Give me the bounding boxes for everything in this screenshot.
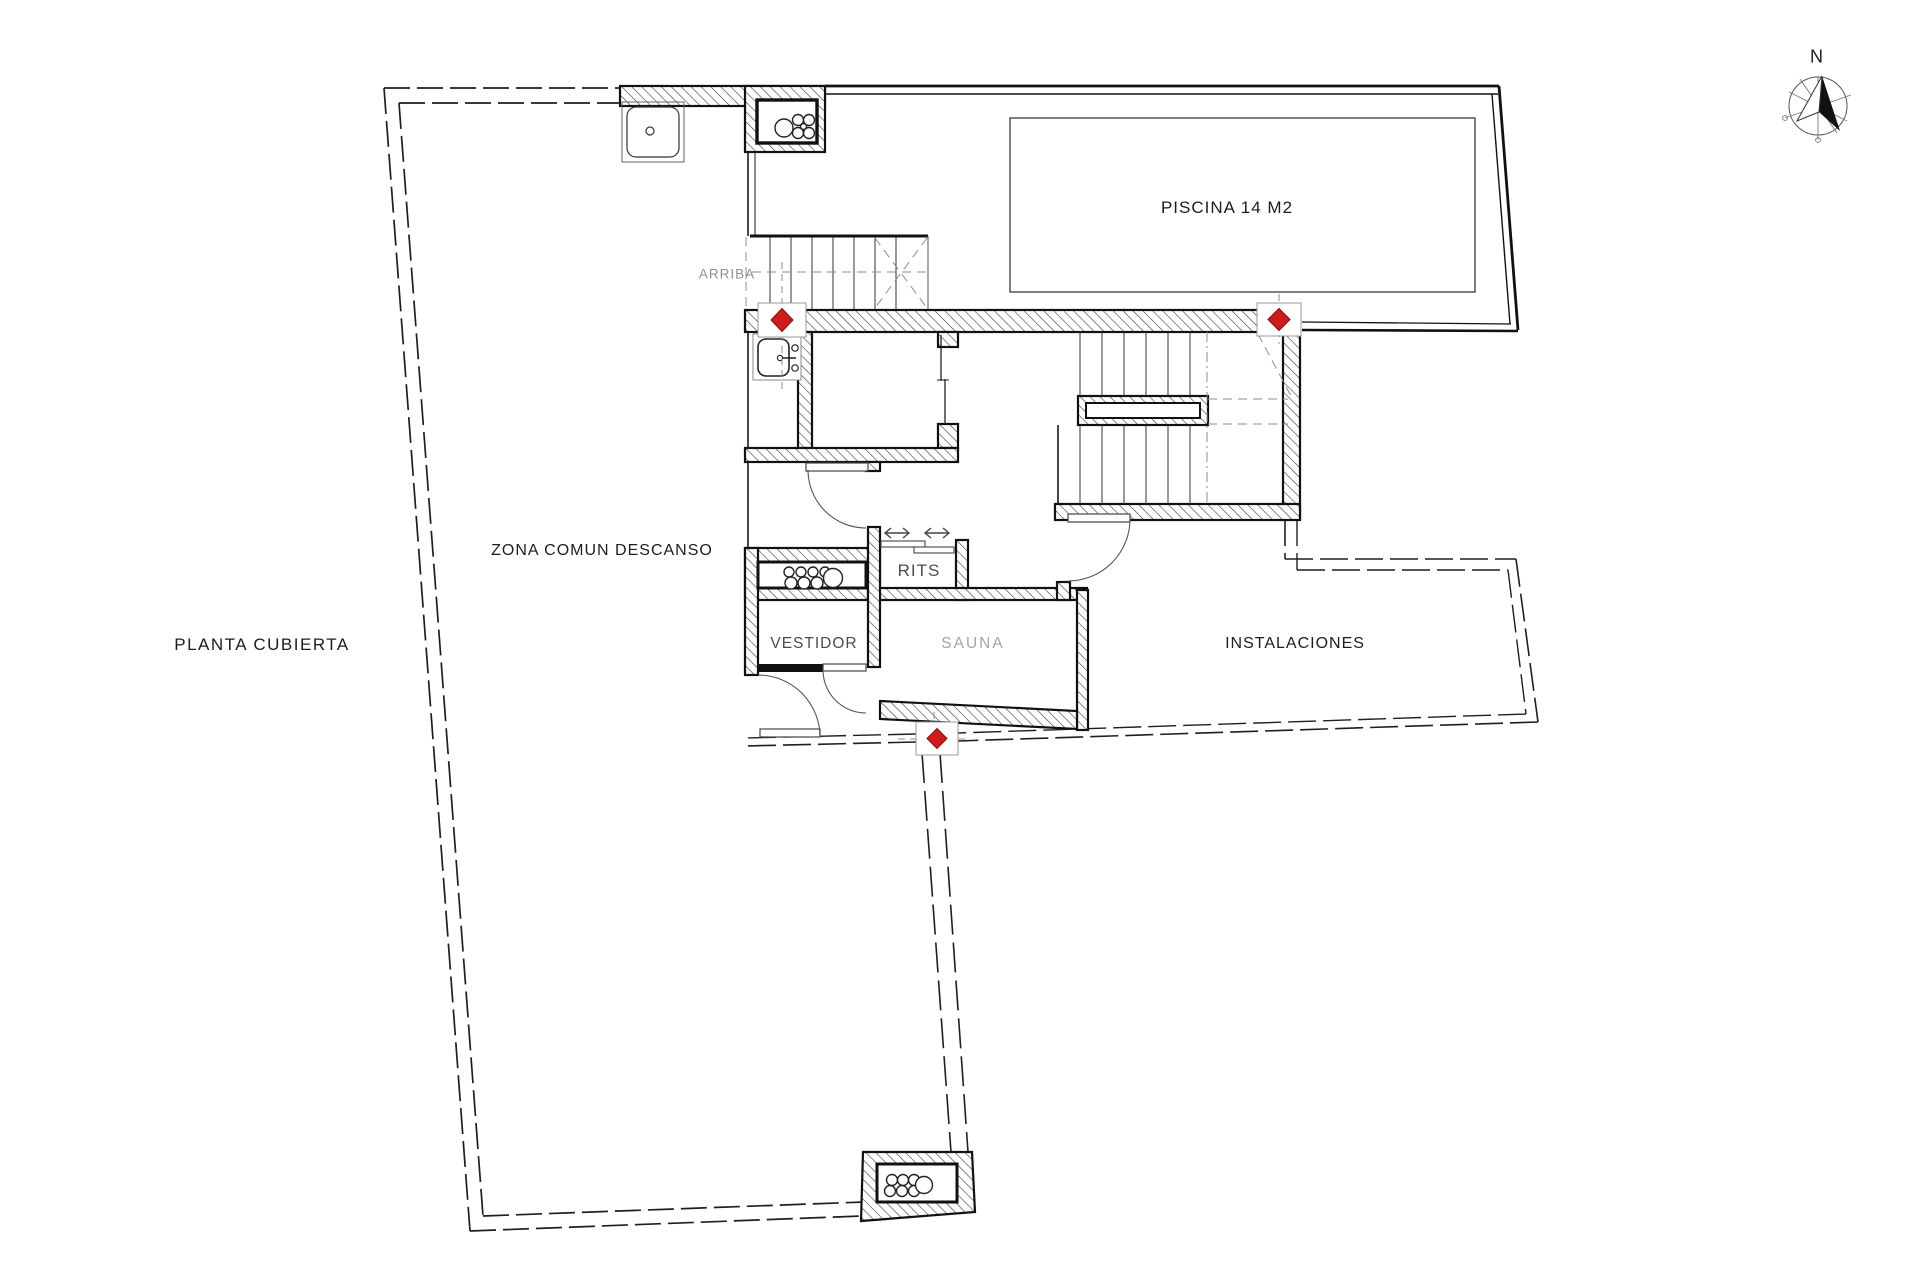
- walls: [620, 86, 1300, 1221]
- sink-icon: [753, 334, 801, 380]
- room-label-piscina: PISCINA 14 M2: [1161, 198, 1293, 218]
- door-leaf: [1068, 514, 1130, 522]
- valve-marker-icon: [916, 722, 958, 755]
- room-label-vestidor: VESTIDOR: [770, 635, 857, 653]
- floor-plan-canvas: PLANTA CUBIERTA ZONA COMUN DESCANSO PISC…: [0, 0, 1920, 1280]
- valve-marker-icon: [758, 303, 806, 337]
- terrace-boundary: [384, 88, 864, 1231]
- elevator-sliding-door: [937, 335, 949, 424]
- door-leaf: [806, 463, 868, 471]
- door-swing-icon: [1068, 519, 1130, 581]
- north-label: N: [1810, 47, 1824, 68]
- door-leaf: [823, 664, 866, 671]
- valve-marker-icon: [1257, 303, 1301, 336]
- vent-niche-top: [757, 100, 817, 143]
- rits-sliding-doors: [881, 528, 954, 553]
- pipe-closet-niche: [758, 562, 866, 589]
- door-leaf: [760, 729, 820, 737]
- stair-railing: [1086, 403, 1200, 418]
- lower-box-niche: [877, 1164, 957, 1202]
- sliding-door-arrow-icon: [885, 528, 949, 538]
- north-compass-icon: [1783, 76, 1851, 142]
- zone-label-zona-comun: ZONA COMUN DESCANSO: [491, 542, 713, 560]
- door-swing-icon: [823, 670, 866, 713]
- pipe-bundle-icon: [784, 567, 843, 589]
- room-label-instalaciones: INSTALACIONES: [1225, 635, 1365, 653]
- room-label-sauna: SAUNA: [941, 635, 1004, 653]
- door-swing-icon: [808, 470, 866, 528]
- service-corridor: [922, 753, 968, 1152]
- stairs-up-arriba: [746, 152, 928, 309]
- door-swing-icon: [758, 675, 820, 737]
- stair-label-arriba: ARRIBA: [699, 267, 755, 282]
- room-label-rits: RITS: [898, 561, 941, 581]
- shower-tray-icon: [622, 102, 684, 162]
- plan-title-label: PLANTA CUBIERTA: [174, 635, 350, 655]
- vestidor-bottom-wall: [758, 664, 823, 672]
